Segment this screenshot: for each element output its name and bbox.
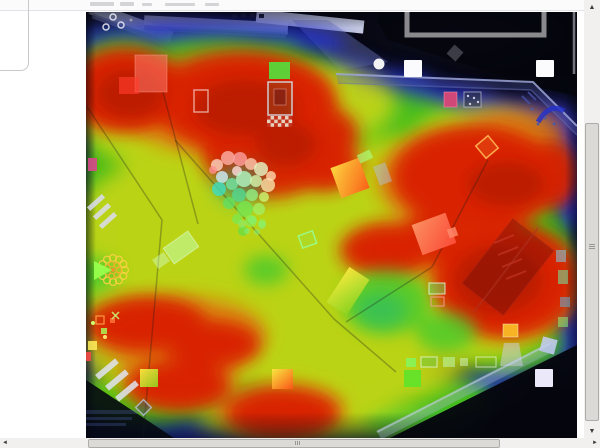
bubble-cluster: [253, 203, 265, 215]
flower-marker: [114, 272, 119, 277]
pink-rect: [444, 92, 457, 107]
green-dot: [248, 216, 256, 224]
tower-checker: [281, 116, 285, 120]
edge-square: [560, 297, 570, 307]
tower-checker: [274, 120, 278, 124]
scroll-right-icon: ►: [592, 440, 598, 446]
ring-marker: [103, 24, 109, 30]
tiny-marker: [88, 341, 97, 350]
white-square-a: [404, 60, 422, 77]
green-dot: [254, 229, 260, 235]
scroll-up-icon: ▲: [589, 4, 596, 11]
toolbar-strip[interactable]: [0, 0, 584, 11]
scroll-right-button[interactable]: ►: [590, 438, 600, 448]
ring-marker: [118, 22, 124, 28]
white-circle-marker: [374, 59, 385, 70]
toolbar-glyph: [165, 3, 195, 6]
bubble-cluster: [223, 197, 235, 209]
navy-stripe: [86, 410, 138, 414]
gradient-square-mid: [272, 369, 293, 389]
stair-bar-bl: [105, 369, 129, 390]
toolbar-glyph: [90, 2, 114, 6]
gradient-square-left: [140, 369, 158, 387]
edge-square: [558, 317, 568, 327]
app-window: ▲ ▼ ◄ ►: [0, 0, 600, 448]
toolbar-glyph: [142, 3, 152, 6]
flower-marker: [114, 263, 119, 268]
blue-tilt-rect: [373, 162, 392, 185]
locker: [421, 357, 437, 367]
stair-bar-bl: [95, 358, 119, 379]
tower-checker: [285, 120, 289, 124]
bubble-cluster: [233, 152, 247, 166]
white-square-c: [535, 369, 553, 387]
tower-checker: [285, 123, 289, 127]
heatmap-viewport[interactable]: [86, 12, 577, 438]
mini-room-dot: [477, 101, 479, 103]
corner-dot: [537, 123, 540, 126]
scroll-up-button[interactable]: ▲: [584, 0, 600, 14]
bubble-cluster: [237, 201, 253, 217]
scroll-down-button[interactable]: ▼: [584, 424, 600, 438]
mini-room-dot: [473, 97, 475, 99]
orange-outline-tilt: [476, 136, 499, 159]
tower-checker: [289, 120, 293, 124]
outline-rect: [194, 90, 208, 112]
bubble-cluster: [254, 162, 268, 176]
horizontal-scrollbar-thumb[interactable]: [88, 439, 500, 448]
diamond-outline: [136, 400, 152, 416]
green-square: [404, 370, 421, 387]
locker: [460, 358, 468, 366]
salmon-block: [135, 55, 167, 92]
magenta-rect: [88, 158, 97, 171]
scroll-down-icon: ▼: [589, 428, 596, 435]
tower-checker: [267, 116, 271, 120]
tower-checker: [271, 120, 275, 124]
navy-stripe: [86, 417, 132, 420]
green-dot: [244, 228, 250, 234]
edge-square: [556, 250, 566, 262]
bubble-cluster: [250, 175, 262, 187]
white-square-b: [536, 60, 554, 77]
tower-door: [274, 89, 286, 105]
scrollbar-grip-icon: [295, 441, 296, 445]
corner-dot: [553, 123, 556, 126]
tower-checker: [271, 123, 275, 127]
locker: [406, 358, 416, 367]
tiny-dot: [91, 321, 95, 325]
vertical-scrollbar-thumb[interactable]: [585, 123, 599, 421]
red-block: [119, 77, 139, 94]
bubble-cluster: [212, 182, 226, 196]
flower-marker: [109, 262, 114, 267]
outline-rect: [228, 94, 240, 109]
red-edge-mark: [86, 352, 91, 361]
ring-dot: [130, 19, 133, 22]
green-dot: [258, 221, 266, 229]
stair-bar-bl: [115, 380, 139, 401]
tower-checker: [281, 123, 285, 127]
ring-marker: [110, 14, 116, 20]
tower-checker: [278, 120, 282, 124]
tiny-marker: [101, 328, 107, 334]
tower-checker: [267, 123, 271, 127]
tower-checker: [278, 123, 282, 127]
yellow-green-tilt: [326, 267, 369, 315]
locker: [476, 357, 496, 367]
edge-square: [558, 270, 568, 284]
green-outline-square: [298, 231, 317, 248]
tower-checker: [285, 116, 289, 120]
orange-square: [503, 324, 518, 337]
toolbar-glyph: [205, 3, 219, 6]
horizontal-scrollbar[interactable]: ◄ ►: [0, 438, 600, 448]
mini-room: [464, 92, 481, 107]
vertical-scrollbar[interactable]: ▲ ▼: [584, 0, 600, 438]
scroll-left-button[interactable]: ◄: [0, 438, 10, 448]
bubble-cluster: [209, 166, 217, 174]
map-structure-overlay: [86, 12, 577, 438]
tower-checker: [267, 120, 271, 124]
bubble-cluster: [259, 192, 269, 202]
outside-mask-bottom-right: [390, 345, 577, 438]
bubble-cluster: [216, 171, 228, 183]
green-dot: [238, 220, 246, 228]
mini-room-dot: [469, 103, 471, 105]
corner-dot: [544, 117, 547, 120]
tower-checker: [274, 116, 278, 120]
tiny-marker: [96, 316, 104, 324]
orange-tilt-square: [330, 158, 369, 198]
tower-checker: [271, 116, 275, 120]
locker: [443, 357, 455, 367]
toolbar-glyph: [120, 2, 134, 6]
bubble-cluster: [266, 171, 276, 181]
tower-checker: [289, 116, 293, 120]
tower-checker: [274, 123, 278, 127]
bed-large: [163, 231, 198, 264]
bubble-cluster: [221, 151, 235, 165]
tiny-dot: [103, 335, 107, 339]
blue-tick: [522, 96, 530, 104]
bubble-cluster: [236, 171, 252, 187]
corner-dot: [531, 108, 534, 111]
tower-roof: [269, 62, 290, 79]
scroll-left-icon: ◄: [2, 440, 8, 446]
seam: [334, 319, 396, 372]
outline-pair-green: [429, 283, 445, 294]
bubble-cluster: [246, 189, 258, 201]
scrollbar-grip-icon: [589, 244, 595, 245]
outline-pair-red: [431, 297, 444, 306]
tower-checker: [281, 120, 285, 124]
mini-room-dot: [467, 95, 469, 97]
navy-stripe: [86, 423, 126, 426]
panel-corner: [0, 0, 29, 71]
seam: [163, 92, 198, 224]
tower-checker: [289, 123, 293, 127]
tower-checker: [278, 116, 282, 120]
